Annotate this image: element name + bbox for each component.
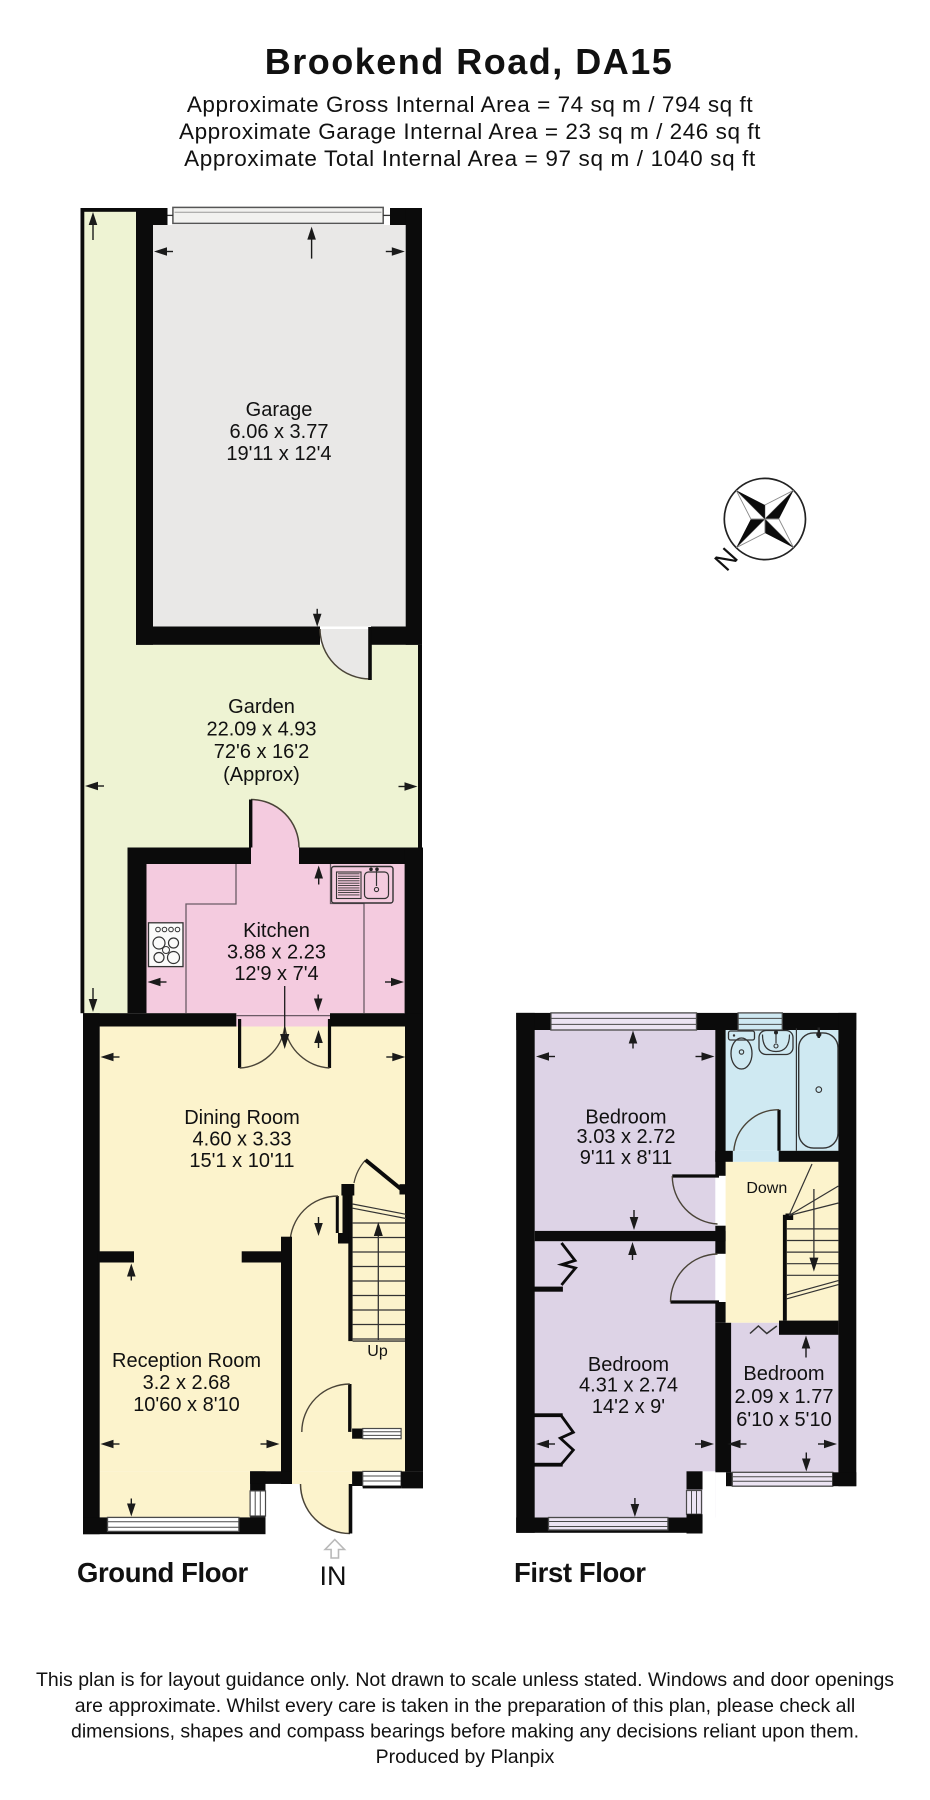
svg-text:Dining Room: Dining Room [184,1107,300,1129]
svg-text:Kitchen: Kitchen [243,920,310,942]
svg-text:6'10 x 5'10: 6'10 x 5'10 [736,1409,832,1431]
svg-text:Garage: Garage [246,399,313,421]
svg-text:Approximate Total Internal Are: Approximate Total Internal Area = 97 sq … [184,146,756,171]
svg-text:This plan is for layout guidan: This plan is for layout guidance only. N… [36,1669,894,1691]
svg-text:72'6 x 16'2: 72'6 x 16'2 [214,741,310,763]
svg-text:15'1 x 10'11: 15'1 x 10'11 [189,1150,294,1172]
svg-text:9'11 x 8'11: 9'11 x 8'11 [580,1147,673,1169]
svg-text:Bedroom: Bedroom [743,1363,824,1385]
svg-text:14'2 x 9': 14'2 x 9' [592,1396,665,1418]
svg-text:Bedroom: Bedroom [588,1354,669,1376]
svg-text:22.09 x 4.93: 22.09 x 4.93 [206,719,316,741]
svg-text:IN: IN [320,1561,347,1591]
svg-text:12'9 x 7'4: 12'9 x 7'4 [234,963,318,985]
svg-text:(Approx): (Approx) [223,764,300,786]
svg-text:4.60 x 3.33: 4.60 x 3.33 [193,1129,292,1151]
svg-text:3.88 x 2.23: 3.88 x 2.23 [227,942,326,964]
svg-text:3.2 x 2.68: 3.2 x 2.68 [143,1372,231,1394]
svg-text:are approximate. Whilst every: are approximate. Whilst every care is ta… [75,1695,855,1717]
svg-text:dimensions, shapes and compass: dimensions, shapes and compass bearings … [71,1721,859,1743]
svg-text:Approximate Gross Internal Are: Approximate Gross Internal Area = 74 sq … [187,92,753,117]
svg-text:Garden: Garden [228,696,295,718]
svg-text:19'11 x 12'4: 19'11 x 12'4 [226,443,331,465]
svg-text:3.03 x 2.72: 3.03 x 2.72 [577,1126,676,1148]
svg-text:Up: Up [367,1343,388,1360]
svg-text:10'60 x 8'10: 10'60 x 8'10 [133,1394,240,1416]
svg-text:Approximate Garage Internal Ar: Approximate Garage Internal Area = 23 sq… [179,119,761,144]
svg-text:N: N [709,542,744,577]
svg-text:2.09 x 1.77: 2.09 x 1.77 [735,1386,834,1408]
svg-text:Ground Floor: Ground Floor [77,1557,249,1588]
svg-text:Produced by Planpix: Produced by Planpix [376,1746,555,1768]
svg-text:6.06 x 3.77: 6.06 x 3.77 [230,421,329,443]
svg-text:Down: Down [746,1180,787,1197]
svg-text:Brookend Road, DA15: Brookend Road, DA15 [265,41,674,82]
svg-text:First Floor: First Floor [514,1557,646,1588]
svg-text:Reception Room: Reception Room [112,1350,261,1372]
svg-text:4.31 x 2.74: 4.31 x 2.74 [579,1375,678,1397]
